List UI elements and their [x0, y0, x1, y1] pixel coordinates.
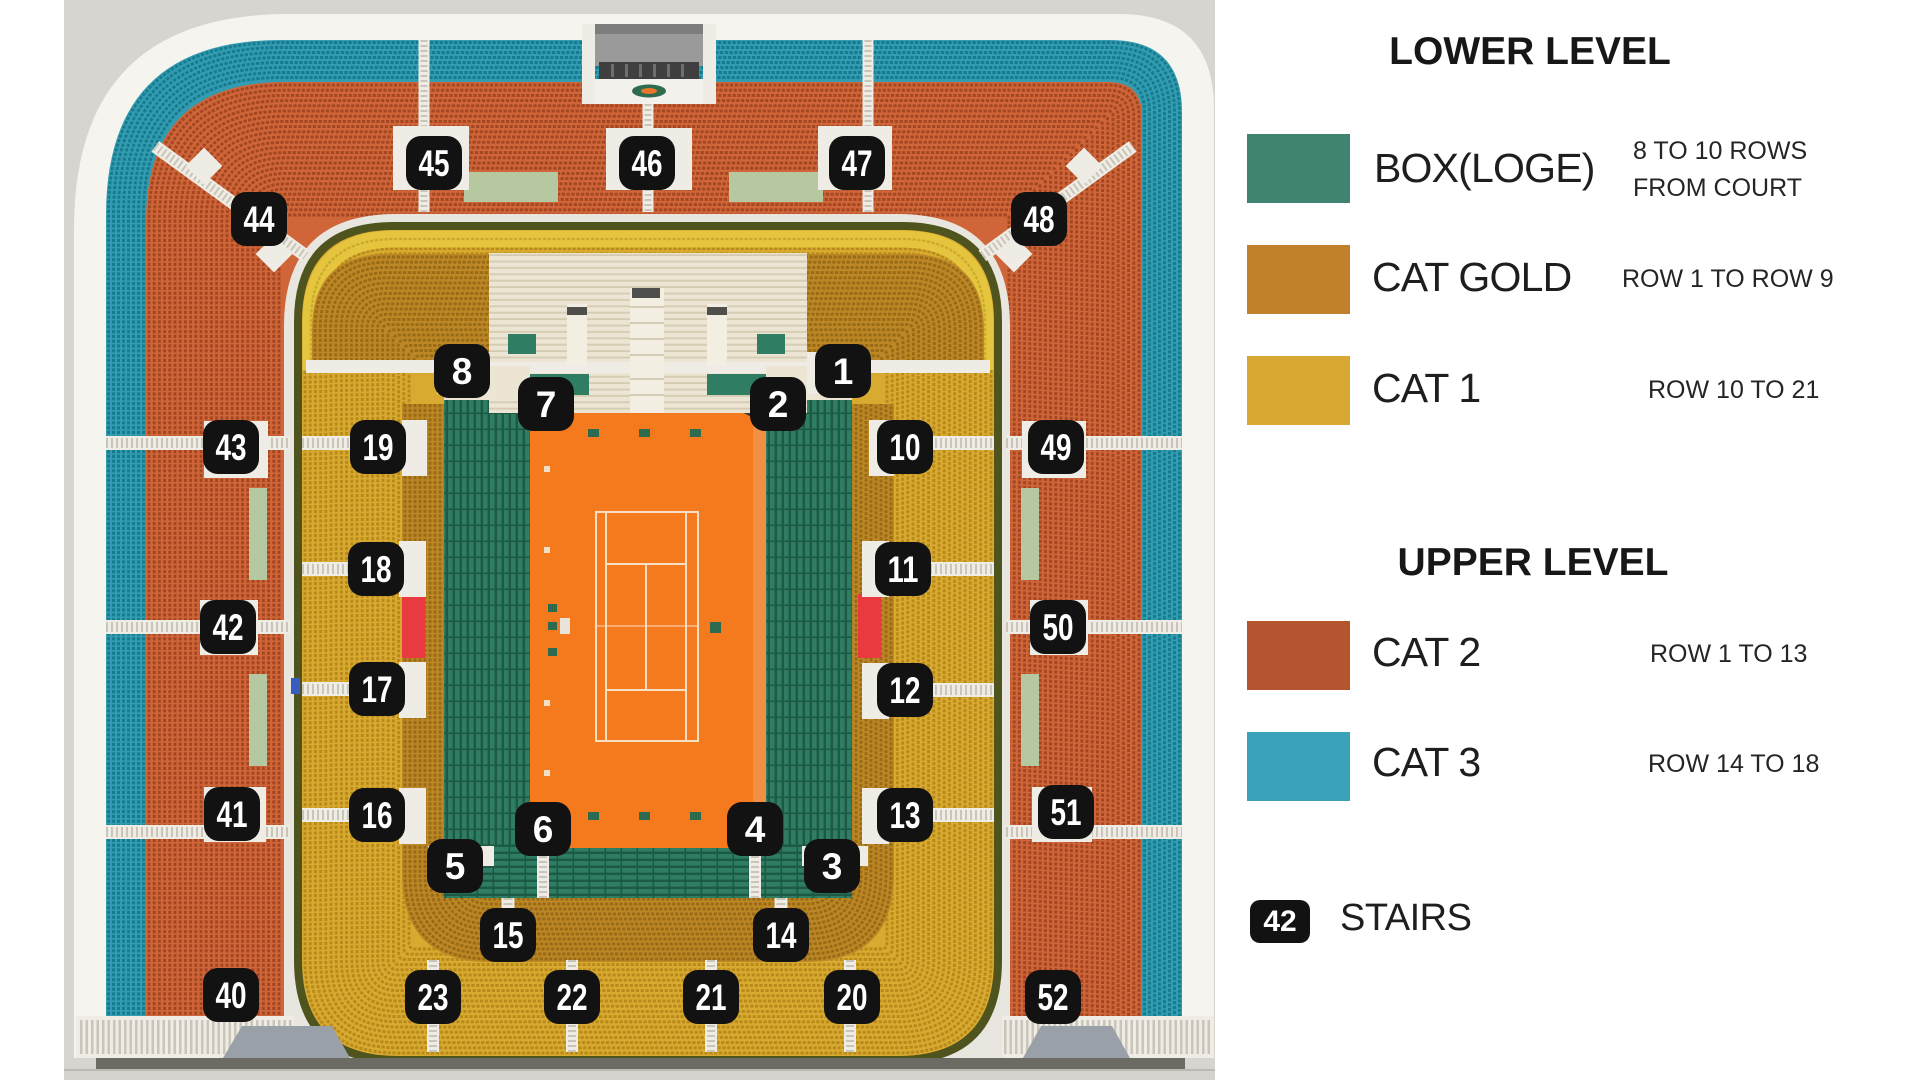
svg-text:51: 51	[1051, 792, 1082, 833]
svg-text:19: 19	[363, 427, 394, 468]
svg-text:40: 40	[216, 975, 247, 1016]
svg-text:18: 18	[361, 549, 392, 590]
svg-text:43: 43	[216, 427, 247, 468]
svg-text:5: 5	[445, 846, 466, 887]
svg-text:47: 47	[842, 143, 873, 184]
svg-text:8: 8	[452, 351, 473, 392]
svg-text:11: 11	[888, 549, 919, 590]
svg-text:42: 42	[213, 607, 244, 648]
svg-text:48: 48	[1024, 199, 1055, 240]
svg-text:2: 2	[768, 384, 789, 425]
svg-text:52: 52	[1038, 977, 1069, 1018]
svg-text:3: 3	[822, 846, 843, 887]
svg-text:17: 17	[362, 669, 393, 710]
svg-text:16: 16	[362, 795, 393, 836]
svg-text:20: 20	[837, 977, 868, 1018]
svg-text:22: 22	[557, 977, 588, 1018]
svg-text:12: 12	[890, 670, 921, 711]
svg-text:14: 14	[766, 915, 797, 956]
svg-text:45: 45	[419, 143, 450, 184]
svg-text:21: 21	[696, 977, 727, 1018]
svg-text:13: 13	[890, 795, 921, 836]
svg-text:41: 41	[217, 794, 248, 835]
svg-text:50: 50	[1043, 607, 1074, 648]
svg-text:7: 7	[536, 384, 557, 425]
svg-text:49: 49	[1041, 427, 1072, 468]
svg-text:23: 23	[418, 977, 449, 1018]
svg-text:1: 1	[833, 351, 854, 392]
svg-text:44: 44	[244, 199, 275, 240]
svg-text:46: 46	[632, 143, 663, 184]
svg-text:10: 10	[890, 427, 921, 468]
svg-text:4: 4	[745, 809, 766, 850]
svg-text:6: 6	[533, 809, 554, 850]
svg-text:15: 15	[493, 915, 524, 956]
